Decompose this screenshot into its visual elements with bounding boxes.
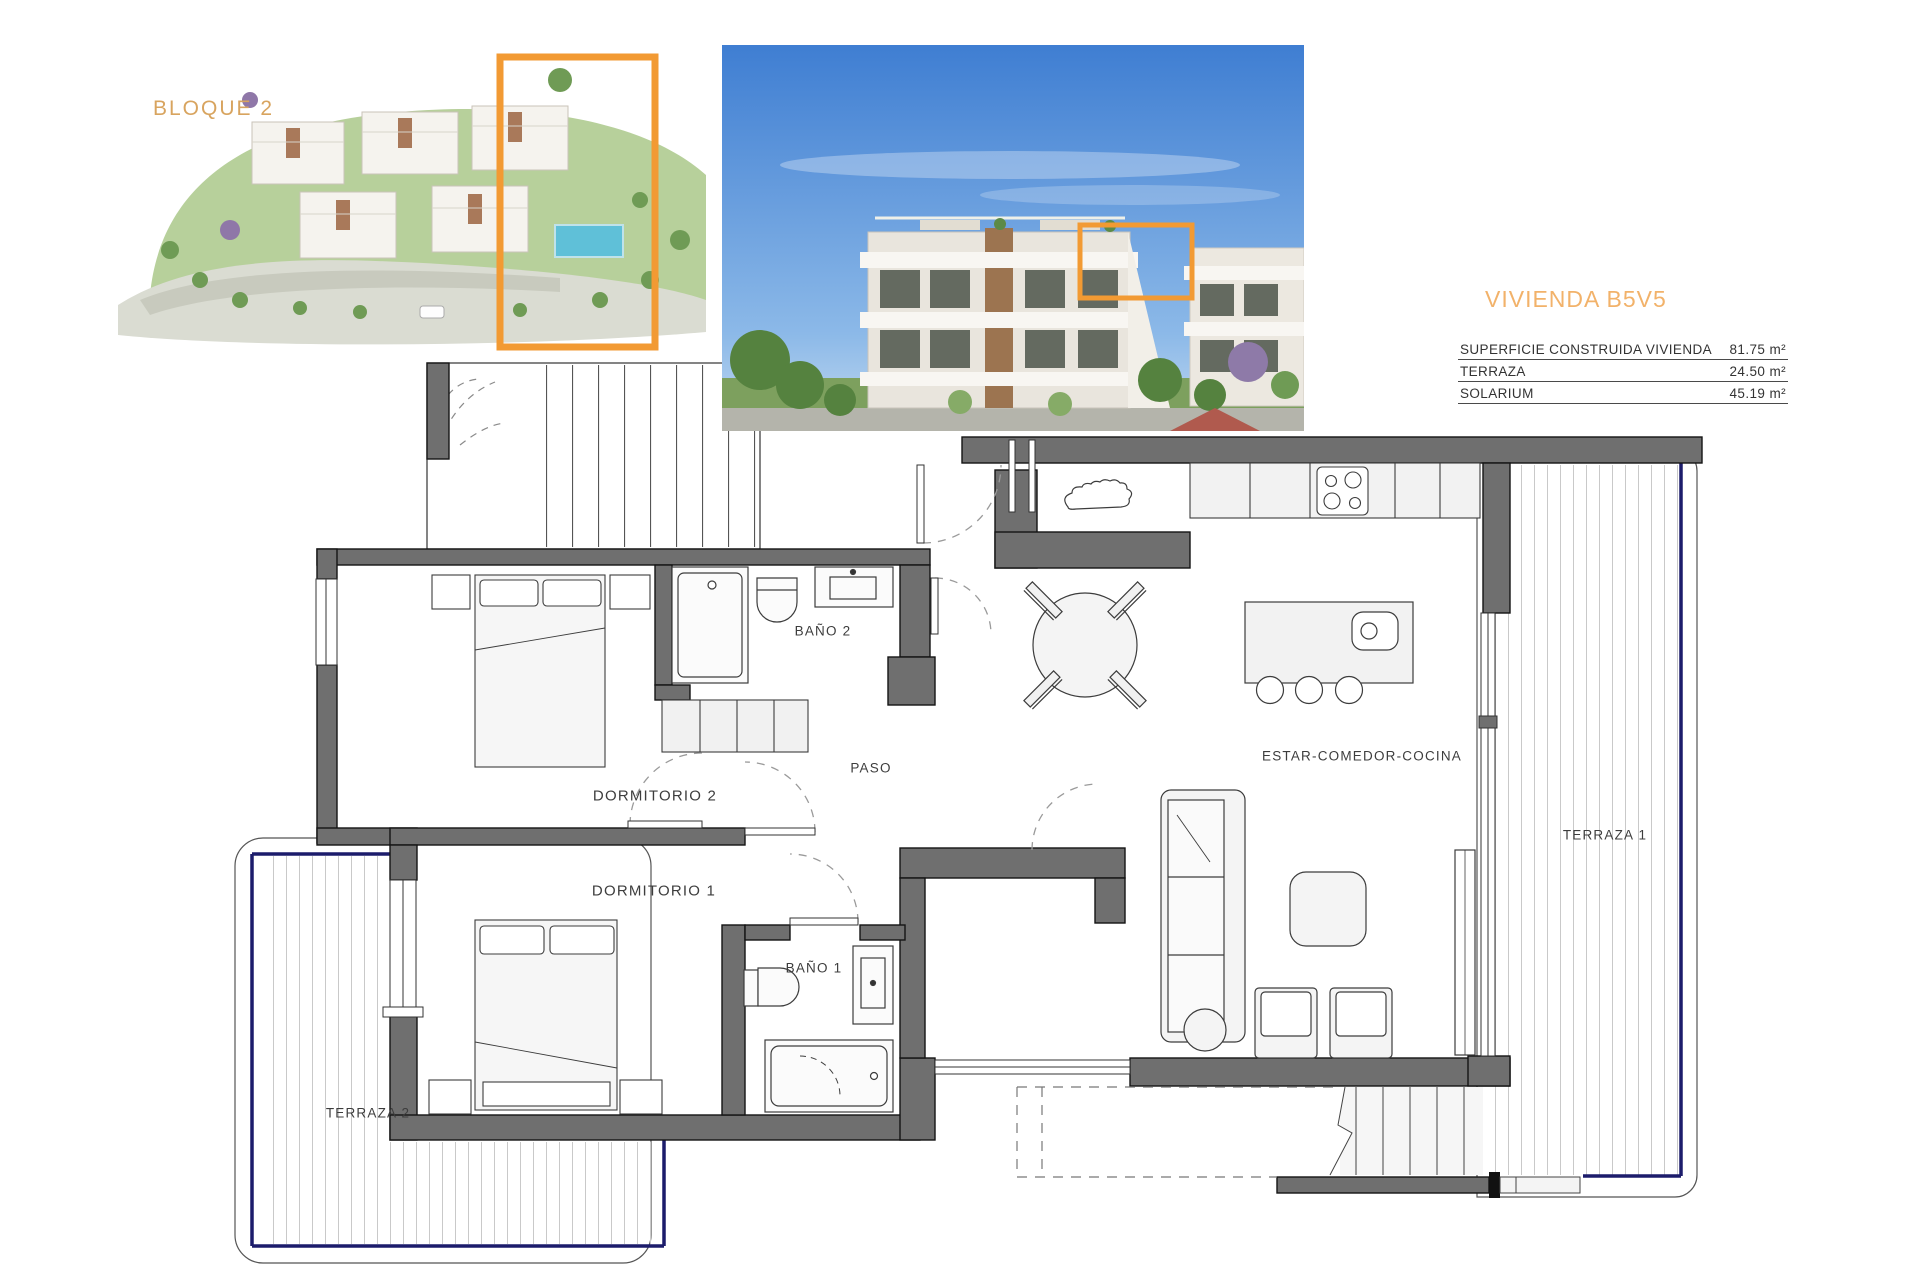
street-building-main <box>860 218 1170 408</box>
floor-plan-page: BLOQUE 2 VIVIENDA B5V5 SUPERFICIE CONSTR… <box>0 0 1920 1280</box>
kitchen-island <box>1245 602 1413 704</box>
area-table: SUPERFICIE CONSTRUIDA VIVIENDA 81.75 m² … <box>1458 341 1788 407</box>
room-label-terraza-1: TERRAZA 1 <box>1563 828 1647 843</box>
area-label: SOLARIUM <box>1460 386 1534 401</box>
area-value: 81.75 m² <box>1730 342 1786 357</box>
area-value: 45.19 m² <box>1730 386 1786 401</box>
area-row-terraza: TERRAZA 24.50 m² <box>1458 363 1788 382</box>
living-furniture <box>1161 790 1475 1058</box>
external-stair <box>1017 1087 1483 1177</box>
bedroom-2-furniture <box>432 575 808 767</box>
room-label-paso: PASO <box>850 761 891 776</box>
area-row-solarium: SOLARIUM 45.19 m² <box>1458 385 1788 404</box>
area-label: SUPERFICIE CONSTRUIDA VIVIENDA <box>1460 342 1712 357</box>
area-label: TERRAZA <box>1460 364 1526 379</box>
area-value: 24.50 m² <box>1730 364 1786 379</box>
dining-table <box>1024 582 1146 709</box>
kitchen-counter <box>1065 463 1480 518</box>
room-label-terraza-2: TERRAZA 2 <box>326 1106 410 1121</box>
armchairs <box>1255 988 1392 1058</box>
street-photo <box>722 45 1310 431</box>
room-label-bano-1: BAÑO 1 <box>786 961 843 976</box>
bathroom-2-fixtures <box>672 567 893 683</box>
unit-title: VIVIENDA B5V5 <box>1485 286 1667 313</box>
area-row-superficie: SUPERFICIE CONSTRUIDA VIVIENDA 81.75 m² <box>1458 341 1788 360</box>
room-label-estar-comedor-cocina: ESTAR-COMEDOR-COCINA <box>1262 749 1462 764</box>
plan-drawing <box>0 0 1920 1280</box>
room-label-bano-2: BAÑO 2 <box>795 624 852 639</box>
staircase-top <box>427 363 760 549</box>
bloque-label: BLOQUE 2 <box>153 97 274 121</box>
room-label-dormitorio-2: DORMITORIO 2 <box>593 788 717 805</box>
room-label-dormitorio-1: DORMITORIO 1 <box>592 883 716 900</box>
